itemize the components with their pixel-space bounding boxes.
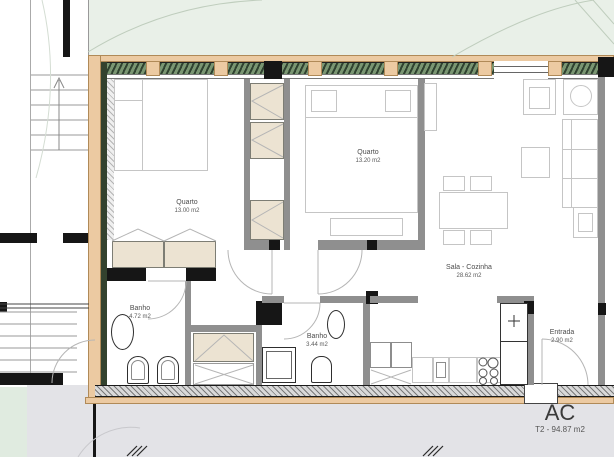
exterior-wall-left bbox=[88, 55, 101, 403]
room-area: 13.20 m2 bbox=[333, 158, 403, 166]
bidet-inner bbox=[161, 360, 175, 380]
bed-pillow-line bbox=[142, 79, 143, 171]
floor-plan: Quarto 13.00 m2 Quarto 13.20 m2 Sala - C… bbox=[0, 0, 614, 457]
stair-east-line bbox=[88, 0, 89, 55]
hall-closet bbox=[193, 333, 254, 362]
room-label-sala-cozinha: Sala - Cozinha 28.62 m2 bbox=[429, 264, 509, 280]
toilet-icon bbox=[311, 356, 332, 383]
apartment-title-block: AC T2 - 94.87 m2 bbox=[500, 401, 614, 434]
chair-icon bbox=[470, 176, 492, 191]
bathroom1-east-wall bbox=[185, 281, 191, 385]
laundry-cabinet bbox=[391, 342, 412, 368]
bed-line bbox=[305, 117, 418, 118]
bed-headboard-line bbox=[114, 100, 142, 101]
stair-handrail bbox=[0, 304, 89, 308]
hall-north-wall bbox=[244, 240, 272, 250]
stairs-icon bbox=[0, 75, 88, 372]
wardrobe-cabinet bbox=[250, 200, 284, 240]
bed-icon bbox=[114, 79, 208, 171]
kitchen-counter bbox=[449, 357, 477, 383]
kitchen-sink-counter bbox=[477, 357, 502, 383]
room-area: 4.72 m2 bbox=[105, 314, 175, 322]
wardrobe-cabinet bbox=[250, 83, 284, 120]
stair-wall-segment bbox=[63, 233, 88, 243]
hall-south-wall bbox=[370, 296, 418, 303]
dining-table-icon bbox=[439, 192, 508, 229]
wall-hatch-strip bbox=[107, 79, 114, 240]
room-label-banho-2: Banho 3.44 m2 bbox=[282, 333, 352, 349]
door-frame-stub bbox=[367, 240, 377, 250]
tall-cabinet-icon bbox=[500, 303, 528, 385]
corner-pier bbox=[598, 57, 614, 77]
pillow-icon bbox=[311, 90, 337, 112]
wardrobe-east-wall bbox=[284, 79, 290, 250]
sofa-icon bbox=[562, 119, 598, 208]
room-area: 2.90 m2 bbox=[527, 338, 597, 346]
site-boundary-curve bbox=[36, 0, 51, 178]
room-label-entrada: Entrada 2.90 m2 bbox=[527, 329, 597, 345]
laundry-cabinet bbox=[370, 342, 391, 368]
bathroom1-door-opening bbox=[146, 268, 186, 281]
structural-block bbox=[256, 301, 282, 325]
tall-cabinet-shelf bbox=[500, 341, 528, 342]
room-name: Sala - Cozinha bbox=[429, 264, 509, 273]
stair-top-wall bbox=[63, 0, 70, 57]
bench-icon bbox=[330, 218, 403, 236]
apartment-code: AC bbox=[500, 401, 614, 425]
kitchen-counter-inner bbox=[436, 362, 446, 378]
chair-icon bbox=[443, 230, 465, 245]
chair-icon bbox=[443, 176, 465, 191]
room-area: 3.44 m2 bbox=[282, 342, 352, 350]
closet-north-wall bbox=[191, 325, 256, 332]
window-frame bbox=[548, 61, 562, 76]
sofa-cushion-line bbox=[562, 178, 598, 179]
garden-area bbox=[88, 0, 614, 57]
green-strip bbox=[0, 387, 27, 457]
sofa-cushion-line bbox=[562, 149, 598, 150]
room-name: Quarto bbox=[152, 199, 222, 208]
apartment-total-area: T2 - 94.87 m2 bbox=[500, 425, 614, 434]
room-name: Banho bbox=[282, 333, 352, 342]
tv-unit-icon bbox=[424, 83, 437, 131]
window-frame bbox=[146, 61, 160, 76]
coffee-table-icon bbox=[521, 147, 550, 178]
window-frame bbox=[478, 61, 492, 76]
room-area: 13.00 m2 bbox=[152, 208, 222, 216]
shower-inner bbox=[266, 351, 292, 379]
pillow-icon bbox=[385, 90, 411, 112]
window-frame bbox=[214, 61, 228, 76]
window-frame bbox=[308, 61, 322, 76]
wall-stub bbox=[598, 303, 606, 315]
room-name: Banho bbox=[105, 305, 175, 314]
wardrobe-cabinet bbox=[112, 241, 164, 268]
room-name: Entrada bbox=[527, 329, 597, 338]
bathroom2-door-opening bbox=[284, 296, 320, 303]
room-label-quarto-1: Quarto 13.00 m2 bbox=[152, 199, 222, 215]
site-edge-line bbox=[93, 404, 96, 457]
side-table-inner bbox=[578, 213, 593, 232]
chair-icon bbox=[470, 230, 492, 245]
facade-pier bbox=[264, 61, 282, 79]
stair-arrow-icon bbox=[54, 78, 64, 150]
bathroom2-east-wall bbox=[363, 296, 370, 385]
wardrobe-cabinet bbox=[164, 241, 216, 268]
armchair-seat bbox=[529, 87, 550, 109]
stair-wall-segment bbox=[0, 233, 37, 243]
window-frame bbox=[384, 61, 398, 76]
room-area: 28.62 m2 bbox=[429, 273, 509, 281]
room-name: Quarto bbox=[333, 149, 403, 158]
plant-circle-icon bbox=[570, 85, 592, 107]
room-label-banho-1: Banho 4.72 m2 bbox=[105, 305, 175, 321]
balcony-door-line bbox=[494, 72, 548, 73]
sofa-back-line bbox=[571, 119, 572, 208]
toilet-inner bbox=[131, 360, 145, 380]
wardrobe-cabinet bbox=[250, 122, 284, 159]
balcony-door-line bbox=[494, 66, 548, 67]
hall-closet-lower bbox=[193, 363, 254, 385]
stair-west-wall bbox=[30, 0, 31, 385]
stair-bottom-wall bbox=[0, 373, 63, 385]
party-wall-right bbox=[598, 77, 605, 385]
balcony-door-opening bbox=[494, 61, 548, 79]
room-label-quarto-2: Quarto 13.20 m2 bbox=[333, 149, 403, 165]
stair-wall-segment bbox=[0, 302, 7, 312]
kitchen-counter bbox=[412, 357, 433, 383]
